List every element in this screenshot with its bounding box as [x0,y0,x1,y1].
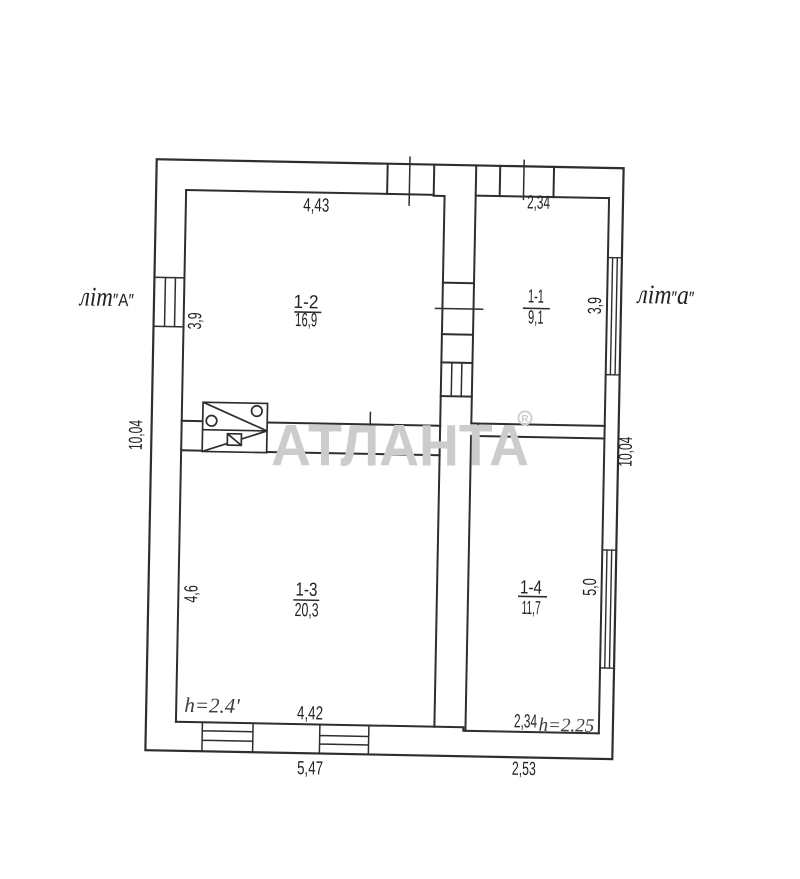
svg-text:1-3: 1-3 [295,580,317,601]
svg-text:20,3: 20,3 [294,600,318,621]
svg-text:9,1: 9,1 [528,307,544,328]
svg-text:4,42: 4,42 [297,703,323,724]
svg-text:10,04: 10,04 [126,420,148,451]
svg-text:1-1: 1-1 [528,286,544,307]
svg-text:4,43: 4,43 [303,195,329,216]
svg-text:4,6: 4,6 [181,585,202,603]
svg-text:5,47: 5,47 [297,758,323,779]
svg-text:3,9: 3,9 [185,312,206,329]
svg-text:АТЛАНТА: АТЛАНТА [271,414,529,479]
svg-text:10,04: 10,04 [616,436,638,467]
svg-text:1-4: 1-4 [520,577,543,598]
svg-text:5,0: 5,0 [580,578,601,596]
svg-text:2,34: 2,34 [527,192,551,213]
svg-text:літ″а″: літ″а″ [635,279,695,310]
svg-text:h=2.25: h=2.25 [538,715,594,737]
svg-text:3,9: 3,9 [585,297,606,314]
svg-text:R: R [521,414,529,425]
svg-text:2,53: 2,53 [512,759,536,780]
svg-text:11,7: 11,7 [521,598,540,619]
svg-text:літ″А″: літ″А″ [78,281,135,312]
svg-text:2,34: 2,34 [514,711,538,732]
svg-text:h=2.4ʹ: h=2.4ʹ [184,693,240,718]
svg-text:16,9: 16,9 [295,310,317,331]
